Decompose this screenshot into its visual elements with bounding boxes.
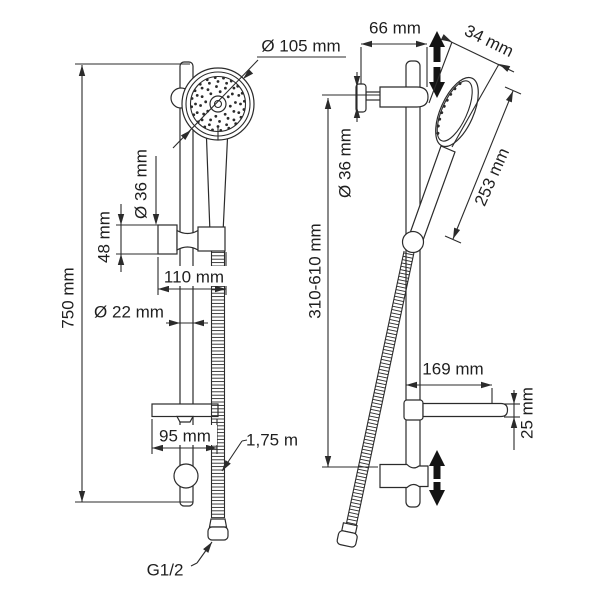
dim-bracket-diameter: Ø 36 mm — [336, 128, 355, 198]
lower-slider-side — [380, 465, 428, 488]
dim-soap-dish-height: 25 mm — [518, 387, 537, 439]
dim-hose-thread: G1/2 — [147, 561, 184, 580]
dim-rail-diameter: Ø 22 mm — [94, 303, 164, 322]
dim-rail-length: 750 mm — [59, 267, 78, 328]
soap-dish-clamp-side — [404, 400, 423, 420]
dim-soap-dish-depth: 169 mm — [422, 360, 483, 379]
dim-hose-length: 1,75 m — [246, 431, 298, 450]
slider-adjust-up-arrow-icon — [429, 450, 445, 479]
soap-dish-clamp-front — [177, 417, 193, 423]
dim-holder-diameter: Ø 36 mm — [132, 149, 151, 219]
side-view — [336, 31, 507, 548]
slider-holder-left-block — [158, 225, 177, 254]
slider-holder-grip — [198, 227, 225, 251]
dim-shower-head-diameter: Ø 105 mm — [261, 37, 340, 56]
hose-connector-side — [336, 522, 359, 547]
soap-dish-side — [423, 404, 508, 417]
soap-dish-front — [152, 404, 218, 417]
hose-connector-front — [208, 527, 228, 540]
slider-holder-waist — [177, 231, 198, 251]
shower-set-diagram: Ø 105 mm 750 mm Ø 36 mm 48 mm 110 mm Ø 2… — [0, 0, 600, 600]
handshower-handle-front — [207, 138, 228, 233]
rail-end-knob — [174, 464, 198, 488]
height-adjust-up-arrow-icon — [429, 31, 445, 62]
dim-height-range: 310-610 mm — [306, 223, 325, 318]
dim-holder-reach: 110 mm — [164, 268, 224, 287]
technical-drawing: Ø 105 mm 750 mm Ø 36 mm 48 mm 110 mm Ø 2… — [0, 0, 600, 600]
dim-head-thickness: 34 mm — [461, 21, 516, 61]
dim-wall-offset: 66 mm — [369, 19, 421, 38]
rail-side — [406, 61, 420, 507]
dim-soap-dish-width: 95 mm — [159, 427, 211, 446]
dim-holder-height: 48 mm — [95, 211, 114, 263]
head-center-cap — [210, 96, 226, 112]
dim-handshower-length: 253 mm — [471, 145, 513, 209]
holder-ball-joint — [403, 232, 424, 253]
hose-nut-neck-icon — [210, 519, 227, 527]
front-view — [152, 62, 254, 540]
slider-adjust-down-arrow-icon — [429, 482, 445, 506]
wall-bracket-body — [380, 87, 428, 107]
